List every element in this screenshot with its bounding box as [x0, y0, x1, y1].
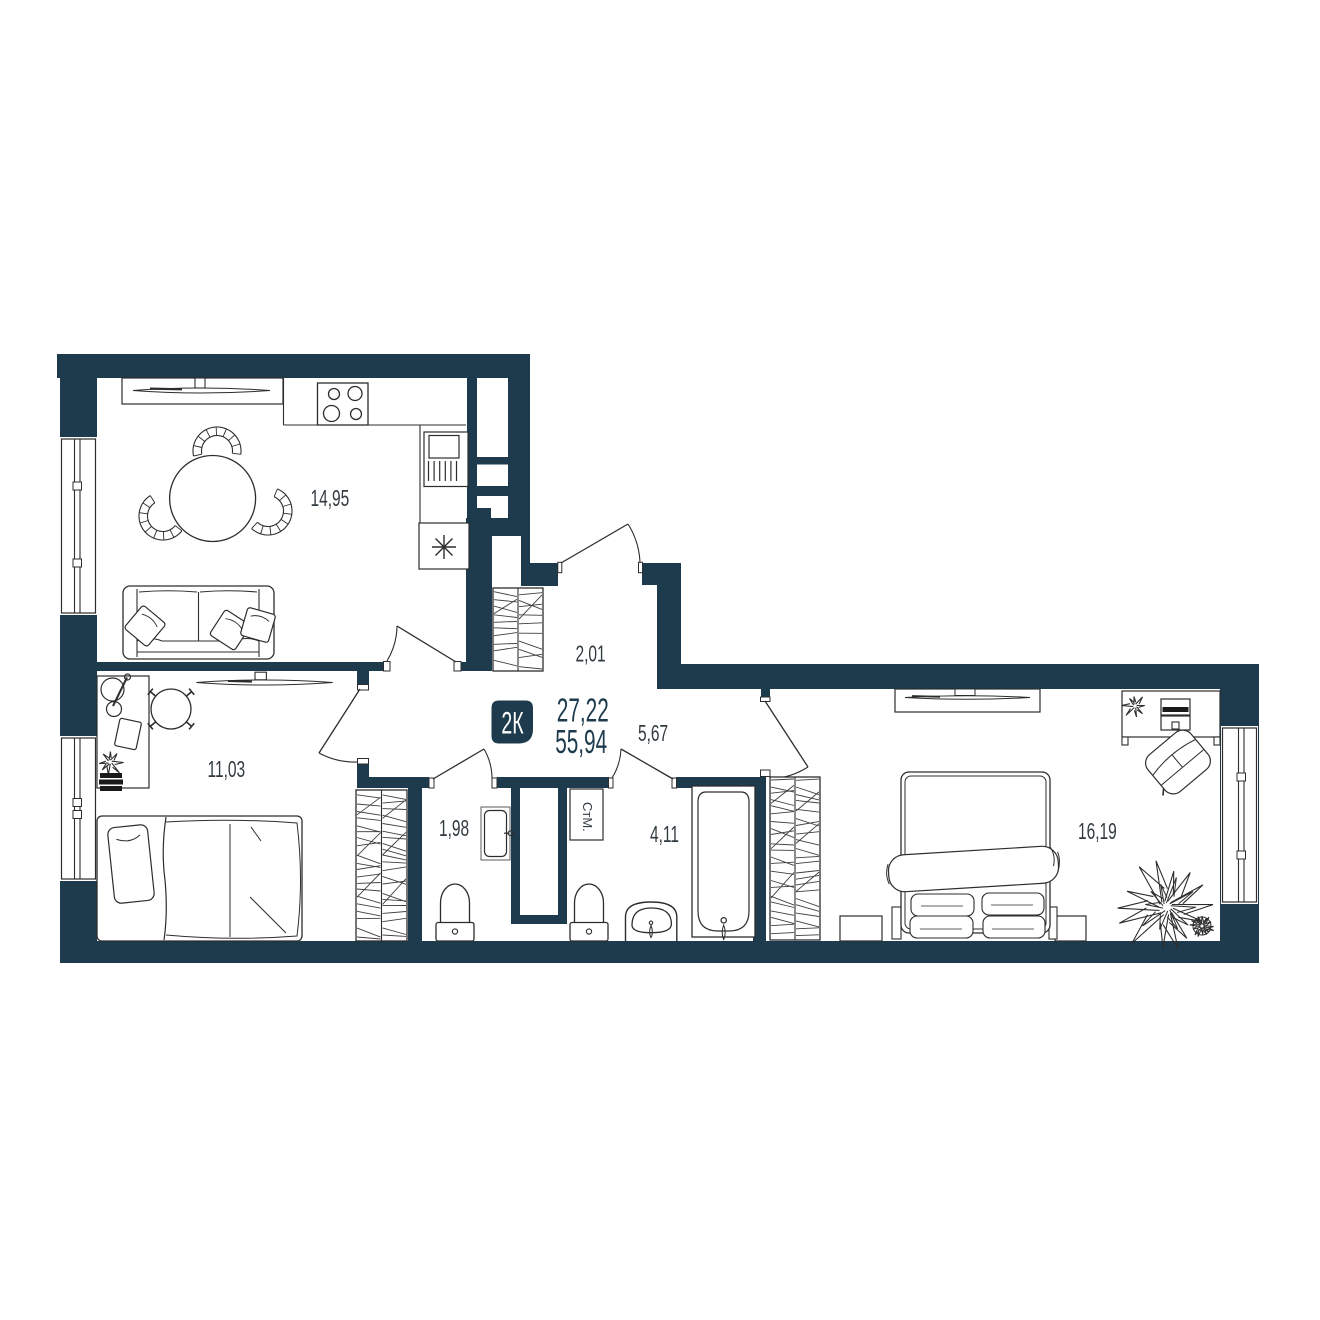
svg-text:2К: 2К	[501, 705, 524, 741]
svg-text:14,95: 14,95	[311, 486, 350, 512]
svg-text:5,67: 5,67	[638, 721, 668, 747]
svg-text:55,94: 55,94	[555, 723, 607, 760]
svg-text:СтМ.: СтМ.	[580, 802, 595, 832]
svg-text:11,03: 11,03	[208, 757, 246, 783]
svg-text:4,11: 4,11	[650, 822, 679, 848]
svg-text:2,01: 2,01	[576, 641, 606, 667]
svg-text:1,98: 1,98	[439, 816, 469, 842]
svg-text:16,19: 16,19	[1078, 819, 1117, 845]
